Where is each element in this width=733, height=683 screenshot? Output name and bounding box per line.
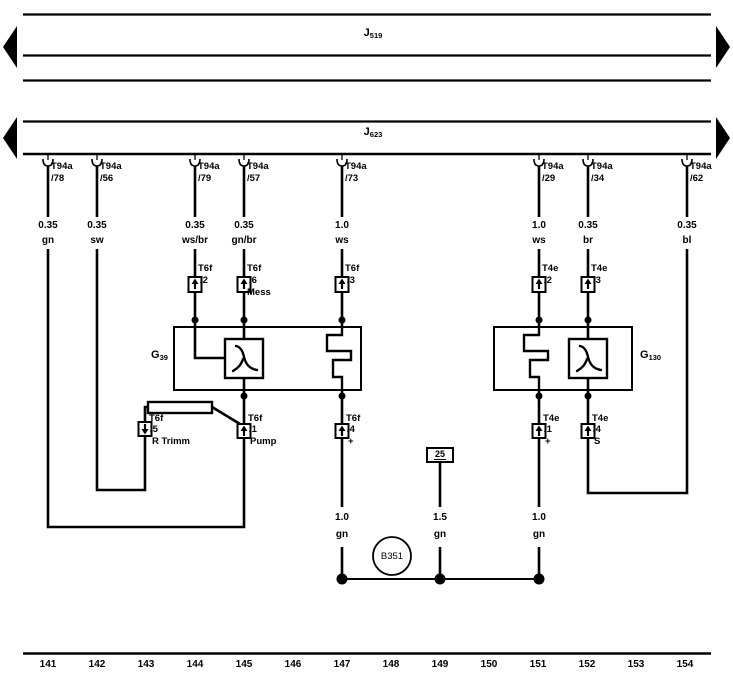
connector-name: T6f [149,413,163,424]
component-outline [494,327,632,390]
junction-dot [339,393,346,400]
connector-note: + [348,436,354,447]
track-number: 147 [334,659,351,671]
junction-dot [337,574,348,585]
terminal-label: T94a [100,161,122,172]
wire-gauge: 1.0 [335,512,349,524]
connector-note: S [594,436,600,447]
wire-gauge: 0.35 [677,220,696,232]
connector-pin: /2 [544,275,552,286]
connector-name: T6f [345,263,359,274]
component-label-prefix: G [640,349,649,361]
terminal-label: T94a [247,161,269,172]
connector-note: Pump [250,436,276,447]
connector-pin: /4 [347,424,355,435]
junction-dot [585,317,592,324]
junction-dot [241,317,248,324]
junction-dot [585,393,592,400]
component-g130 [494,327,632,390]
component-label-g130: G130 [640,349,661,362]
ground-point-number: 25 [434,449,446,460]
track-number: 144 [187,659,204,671]
connector-name: T6f [346,413,360,424]
terminal-label: T94a [591,161,613,172]
wire-color: gn [336,529,348,541]
junction-dot [241,393,248,400]
connector-name: T4e [591,263,607,274]
terminal-label: T94a [345,161,367,172]
heater-element-icon [327,327,351,390]
component-label-b351: B351 [381,551,403,562]
wire-gauge: 1.0 [335,220,349,232]
track-number: 145 [236,659,253,671]
bus-continuation-arrow-right-icon [716,26,730,68]
track-number: 152 [579,659,596,671]
terminal-label: T94a [198,161,220,172]
wiring-graphics [0,0,733,683]
bus-label-j519: J519 [364,27,383,40]
connector-pin: /3 [593,275,601,286]
bus-label-sub: 519 [370,31,383,40]
wire-segment [212,407,240,424]
wire-gauge: 0.35 [38,220,57,232]
wire-gauge: 1.5 [433,512,447,524]
connector-name: T4e [542,263,558,274]
junction-dot [192,317,199,324]
terminal-pin: /79 [198,173,211,184]
wire-gauge: 0.35 [185,220,204,232]
junction-dot [534,574,545,585]
connector-note: R Trimm [152,436,190,447]
component-g39 [174,327,361,390]
terminal-pin: /56 [100,173,113,184]
connector-pin: /1 [544,424,552,435]
track-number: 146 [285,659,302,671]
wire-color: gn [533,529,545,541]
track-number: 142 [89,659,106,671]
wire-color: bl [683,235,692,247]
connector-note: + [545,436,551,447]
track-number: 150 [481,659,498,671]
terminal-label: T94a [51,161,73,172]
connector-pin: /5 [150,424,158,435]
connector-name: T6f [198,263,212,274]
track-number: 143 [138,659,155,671]
junction-dot [536,317,543,324]
track-number: 154 [677,659,694,671]
terminal-pin: /34 [591,173,604,184]
component-label-sub: 130 [649,353,662,362]
wire-gauge: 0.35 [87,220,106,232]
connector-pin: /2 [200,275,208,286]
connector-pin: /4 [593,424,601,435]
wire-color: ws/br [182,235,208,247]
connector-name: T6f [247,263,261,274]
terminal-label: T94a [690,161,712,172]
track-number: 148 [383,659,400,671]
wire-segment [97,249,145,490]
wire-gauge: 1.0 [532,512,546,524]
wire-color: gn [434,529,446,541]
terminal-pin: /78 [51,173,64,184]
lower-connector-symbols [139,422,595,438]
track-number: 149 [432,659,449,671]
wire-color: ws [532,235,545,247]
junction-dot [536,393,543,400]
track-number: 153 [628,659,645,671]
connector-name: T4e [592,413,608,424]
resistor-icon [148,402,212,413]
connector-name: T6f [248,413,262,424]
bus-label-sub: 623 [370,130,383,139]
connector-note: Mess [247,287,271,298]
connector-pin: /1 [249,424,257,435]
component-label-sub: 39 [160,353,168,362]
terminal-pin: /29 [542,173,555,184]
component-label-g39: G39 [151,349,168,362]
terminal-pin: /62 [690,173,703,184]
bus-j519 [3,15,730,81]
connector-pin: /6 [249,275,257,286]
wire-color: gn/br [232,235,257,247]
wiring-diagram-page: J519 J623 G39 G130 B351 25 T94a /78 T94a… [0,0,733,683]
wire-color: sw [90,235,103,247]
bus-continuation-arrow-left-icon [3,26,17,68]
component-label-prefix: G [151,349,160,361]
junction-dot [339,317,346,324]
wire-gauge: 1.0 [532,220,546,232]
wire-color: ws [335,235,348,247]
internal-wire [195,327,225,358]
terminal-pin: /73 [345,173,358,184]
bus-continuation-arrow-left-icon [3,117,17,159]
connector-pin: /3 [347,275,355,286]
junction-dot [435,574,446,585]
bus-label-j623: J623 [364,126,383,139]
track-number: 141 [40,659,57,671]
wire-gauge: 0.35 [578,220,597,232]
connector-name: T4e [543,413,559,424]
track-number: 151 [530,659,547,671]
heater-element-icon [524,327,548,390]
terminal-pin: /57 [247,173,260,184]
bus-continuation-arrow-right-icon [716,117,730,159]
wire-gauge: 0.35 [234,220,253,232]
wire-color: br [583,235,593,247]
terminal-label: T94a [542,161,564,172]
ground-point-label: 25 [434,449,446,460]
wire-color: gn [42,235,54,247]
